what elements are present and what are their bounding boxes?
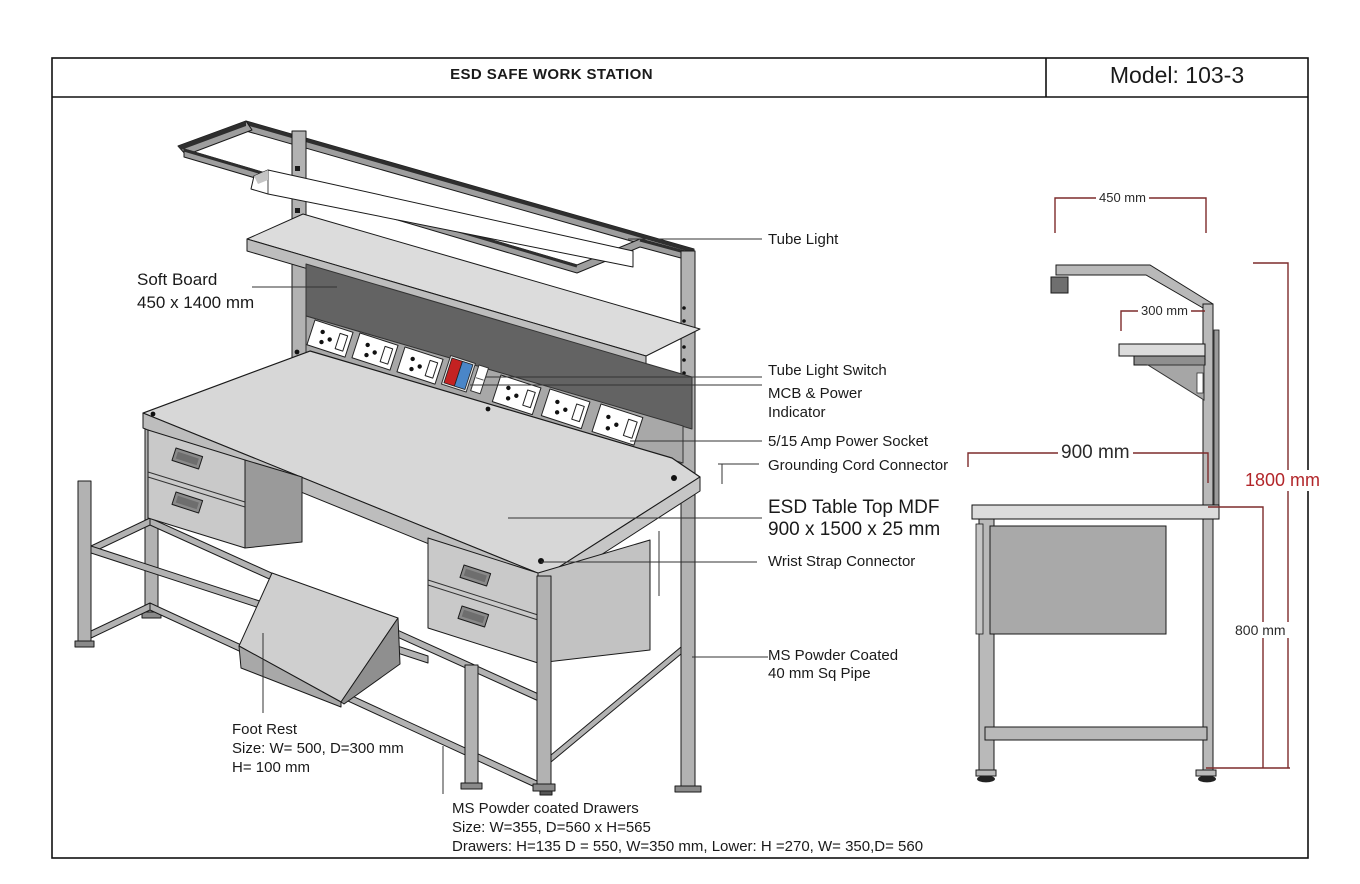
callout-table-top: ESD Table Top MDF 900 x 1500 x 25 mm (768, 497, 940, 541)
grounding-cord-connector-point (671, 475, 677, 481)
isometric-view (75, 121, 768, 795)
side-soft-board (1214, 330, 1219, 505)
callout-foot-rest: Foot Rest Size: W= 500, D=300 mm H= 100 … (232, 720, 404, 777)
side-shelf (1119, 344, 1205, 356)
side-drawer-box (990, 526, 1166, 634)
side-drawer-edge (976, 524, 983, 634)
dimension-900mm: 900 mm (1058, 442, 1133, 464)
callout-wrist-strap: Wrist Strap Connector (768, 552, 915, 571)
callout-tube-light-switch: Tube Light Switch (768, 361, 887, 380)
model-number: Model: 103-3 (1046, 62, 1308, 89)
engineering-drawing-page: ESD SAFE WORK STATION Model: 103-3 Soft … (0, 0, 1360, 884)
right-leg-foot (675, 786, 701, 792)
callout-grounding: Grounding Cord Connector (768, 456, 948, 475)
wrist-strap-connector-point (538, 558, 544, 564)
side-tube-light (1051, 277, 1068, 293)
dimension-450mm: 450 mm (1096, 190, 1149, 205)
side-table-top (972, 505, 1219, 519)
side-leveling-feet (976, 770, 1216, 782)
dimension-1800mm: 1800 mm (1242, 470, 1323, 491)
callout-drawers: MS Powder coated Drawers Size: W=355, D=… (452, 799, 923, 856)
callout-pipe: MS Powder Coated 40 mm Sq Pipe (768, 647, 898, 683)
dimension-800mm: 800 mm (1232, 622, 1289, 638)
frame-rail-rear (551, 647, 681, 762)
dimension-300mm: 300 mm (1138, 303, 1191, 318)
page-title: ESD SAFE WORK STATION (57, 66, 1046, 83)
side-shelf-bracket (1148, 365, 1204, 400)
side-stretcher (985, 727, 1207, 740)
side-bracket-slot (1197, 373, 1203, 393)
side-shelf-support (1134, 356, 1205, 365)
callout-tube-light: Tube Light (768, 230, 838, 249)
callout-power-socket: 5/15 Amp Power Socket (768, 432, 928, 451)
callout-soft-board: Soft Board 450 x 1400 mm (137, 268, 254, 314)
callout-mcb: MCB & Power Indicator (768, 384, 862, 422)
drawing-canvas (0, 0, 1360, 884)
